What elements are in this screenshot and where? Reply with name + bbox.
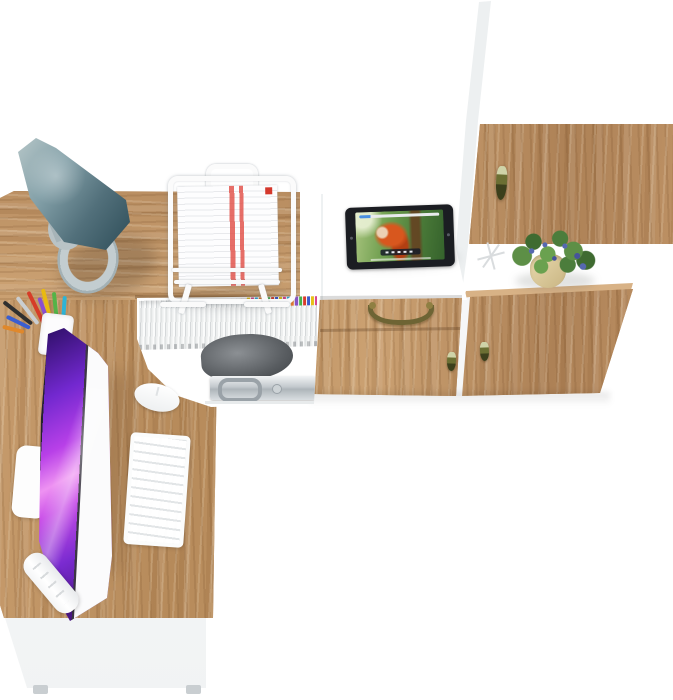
keyboard-keys: [127, 436, 186, 543]
tray-foot-right: [244, 302, 290, 307]
furniture-scene: [0, 0, 673, 700]
briefcase-handle: [218, 378, 262, 402]
document-tray: [158, 160, 293, 310]
tray-front-wire: [172, 268, 282, 272]
tablet-home-button-icon: [447, 233, 450, 236]
briefcase-latch: [272, 384, 282, 394]
cabinet-row-shadow: [310, 392, 610, 406]
tray-front-wire: [174, 280, 280, 284]
shelf-edge-line: [205, 401, 317, 404]
potted-plant: [505, 220, 600, 298]
tray-foot-left: [160, 302, 206, 307]
screen-flare: [31, 383, 111, 579]
paper-red-tag: [265, 187, 272, 194]
media-cabinet-seam: [321, 194, 323, 300]
mouse-seam: [155, 387, 159, 396]
briefcase: [210, 376, 316, 400]
plant-berries: [505, 220, 600, 282]
desk-foot-right: [186, 685, 201, 694]
lamp-highlight: [26, 146, 86, 206]
tablet-camera-icon: [350, 237, 353, 240]
tablet-video-screen: [355, 209, 445, 262]
bail-handle-mount-left: [369, 302, 376, 309]
video-control-buttons-icon: [385, 250, 415, 253]
door-knob-b: [480, 342, 490, 361]
bail-handle-mount-right: [426, 302, 433, 309]
video-scrub-bar: [371, 257, 431, 261]
keyboard: [123, 432, 191, 548]
video-controls-bar: [380, 248, 420, 255]
desk-foot-left: [33, 685, 48, 694]
video-progress-bar: [359, 213, 439, 219]
tablet: [345, 204, 455, 270]
